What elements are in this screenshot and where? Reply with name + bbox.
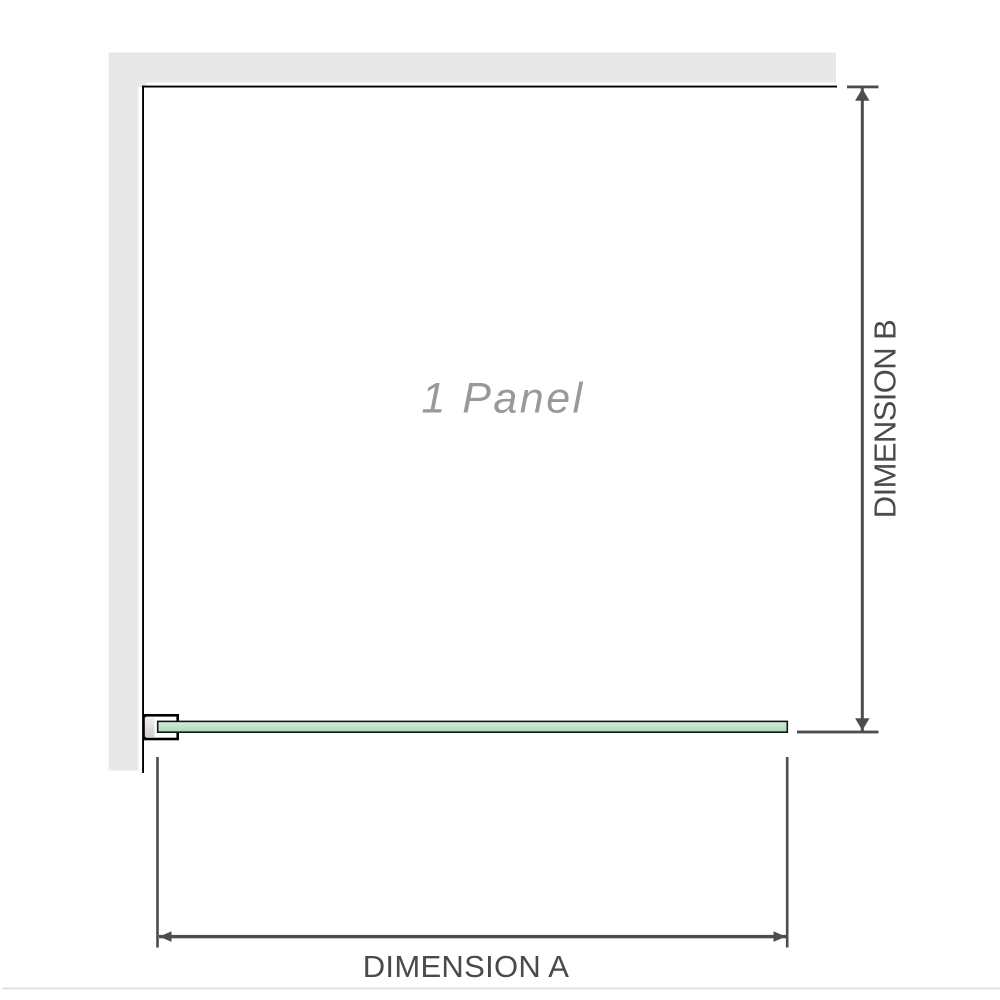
svg-text:1 Panel: 1 Panel — [421, 375, 584, 423]
svg-text:DIMENSION B: DIMENSION B — [867, 320, 902, 518]
svg-text:DIMENSION A: DIMENSION A — [363, 949, 570, 984]
